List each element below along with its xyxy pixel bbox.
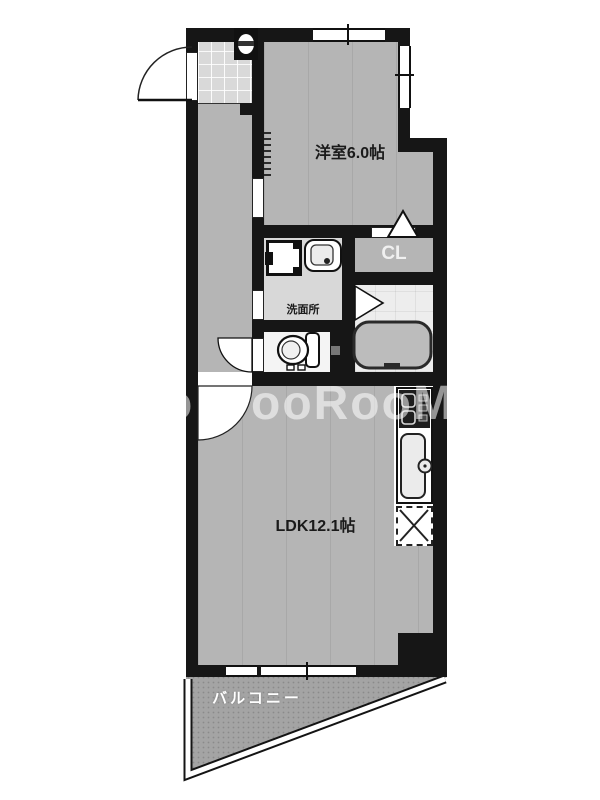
alarm-box-icon [234,28,258,60]
washer-faucet-icon [265,252,273,265]
washing-machine-pan-icon [266,240,302,276]
wall-genkan-stub [240,103,264,115]
toilet-paper-holder-icon [331,346,340,355]
wall-washroom-left [252,235,264,290]
wall-left [186,28,198,677]
wall-right-lower [433,138,447,677]
window-bottom-tick [306,662,308,680]
bathtub-icon [350,318,434,372]
window-bottom-left [226,665,257,677]
window-top-tick [347,24,349,45]
kitchen-unit [396,387,433,504]
washer-tab-bottom-icon [293,267,299,273]
floor-plan: バルコニー [0,0,600,800]
ldk-label: LDK12.1帖 [198,512,433,536]
closet-door-triangle-icon [384,208,422,240]
ldk-door-arc-icon [196,384,256,444]
toilet-icon [274,328,324,374]
kitchen-sink-icon [399,430,432,503]
washer-tab-top-icon [293,243,299,249]
toilet-door-arc-icon [212,332,258,378]
stove-icon [399,390,430,428]
window-top [313,28,385,42]
window-bottom-right [261,665,356,677]
washbasin-icon [303,238,343,274]
western-room-label: 洋室6.0帖 [265,139,435,163]
balcony-label: バルコニー [202,687,312,708]
washroom-label: 洗面所 [264,301,342,317]
western-room-sliding-door-opening [252,178,264,218]
entrance-door-arc-icon [130,40,200,106]
closet-label: CL [355,243,433,265]
washroom-door-opening [252,290,264,320]
window-right [398,46,411,108]
window-right-tick [395,74,414,76]
wall-corner-block [398,633,447,677]
bath-door-triangle-icon [353,283,387,323]
